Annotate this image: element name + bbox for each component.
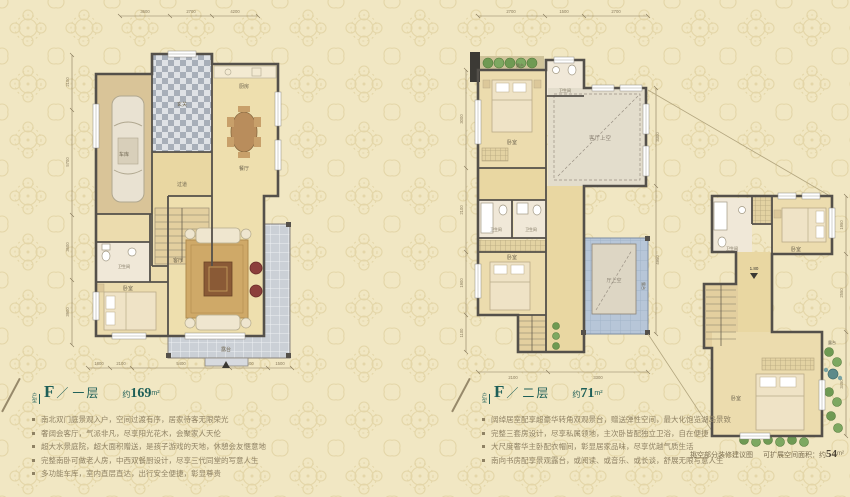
room-label-void-hall: 厅上空 [606,277,621,284]
area-value: 71 [580,386,594,401]
dim-label: 3600 [140,9,150,14]
unit-type-tag: 户型 [480,394,490,404]
room-label-bath-left: 卫生间 [490,227,502,232]
feature-item: 超大水景庭院，超大面积赠送，是孩子游戏的天地，休憩会友惬意地 [32,440,432,454]
expandable-area: 可扩展空间面积：约54m² [763,448,844,460]
floor-divider: ／ [506,384,520,401]
room-label-roof-terrace: 露台 [641,282,647,290]
floor-plan-level1: 3600 2700 4200 2100 5700 3600 3900 1800 … [65,9,294,370]
feature-item: 阔绰居室配享超豪华转角双观景台，赠送弹性空间，最大化饱览湖岛景致 [482,413,850,427]
kitchen-counter-icon [214,66,276,78]
floor-area: 约169m² [122,384,159,402]
room-label-foyer: 玄关 [177,101,187,108]
floor1-info-block: 户型 F ／ 一层 约169m² 南北双门庭景观入户，空间过渡有序，居家待客无限… [12,382,432,481]
feature-item: 完整三套房设计，尽享私属领地，主次卧皆配独立卫浴，自在便捷 [482,427,850,441]
patio-table-icon [824,368,842,380]
room-label-living: 客厅 [173,257,183,264]
height-mark-label: 1.80 [750,266,759,271]
room-label-kitchen: 厨房 [239,83,249,90]
dim-label: 2700 [611,9,621,14]
room-label-bedroom-main: 卧室 [507,139,517,146]
room-label-bedroom-south: 卧室 [507,254,517,261]
dim-label: 3300 [655,132,660,142]
dim-label: 2100 [459,205,464,215]
room-label-bath: 卫生间 [118,263,130,269]
floor-name: 二层 [522,384,550,401]
room-label-porch: 露台 [221,346,231,353]
feature-item: 奢阔会客厅，气派非凡，尽享阳光花木，会聚家人天伦 [32,427,432,441]
area-value: 169 [130,386,151,401]
feature-item: 完整南卧可做老人房，中西双餐厨设计，尽享三代同堂的写意人生 [32,454,432,468]
dim-label: 5400 [176,361,186,366]
dim-label: 3600 [65,242,70,252]
floor-name: 一层 [72,384,100,401]
room-label-dining: 餐厅 [239,165,249,172]
room-label-hall: 过道 [177,181,187,188]
room-label-garage: 车库 [119,151,129,158]
room-label-bath: 卫生间 [726,245,738,251]
expandable-area-unit: m² [837,451,844,457]
floor-plan-level2: 2700 1500 2700 3000 2100 1900 1100 3300 … [459,9,660,380]
attic-caption: 挑空部分装修建议图 可扩展空间面积：约54m² [690,448,846,460]
room-label-bath-top: 卫生间 [559,87,571,93]
room-label-bedroom: 卧室 [123,285,133,292]
dim-label: 2100 [508,375,518,380]
bed-icon [490,262,530,310]
dim-label: 3300 [593,375,603,380]
area-unit: m² [594,390,602,397]
unit-letter: F [44,382,54,402]
floor2-title: 户型 F ／ 二层 约71m² [462,382,850,404]
expandable-area-value: 54 [826,448,837,460]
dim-label: 2700 [186,9,196,14]
room-label-terrace-top: 露台 [516,62,524,68]
feature-item: 南北双门庭景观入户，空间过渡有序，居家待客无限荣光 [32,413,432,427]
dim-label: 4950 [655,255,660,265]
room-label-terrace: 露台 [828,339,836,345]
dim-label: 1500 [559,9,569,14]
dim-label: 4200 [230,9,240,14]
expandable-area-prefix: 可扩展空间面积：约 [763,452,826,459]
car-icon [112,96,144,202]
floor-divider: ／ [56,384,70,401]
dim-label: 3000 [459,114,464,124]
unit-letter: F [494,382,504,402]
dim-label: 2100 [116,361,126,366]
dim-label: 2100 [65,77,70,87]
dim-label: 1950 [839,220,844,230]
unit-type-tag: 户型 [30,394,40,404]
room-label-void-living: 客厅上空 [589,134,612,142]
dim-label: 1900 [459,278,464,288]
dim-label: 2550 [839,288,844,298]
dim-label: 1100 [459,328,464,338]
attic-note: 挑空部分装修建议图 [690,450,753,460]
floor1-title: 户型 F ／ 一层 约169m² [12,382,432,404]
dim-label: 2700 [506,9,516,14]
dim-label: 1500 [275,361,285,366]
room-label-bedroom-top: 卧室 [791,246,801,253]
dim-label: 5700 [65,157,70,167]
brochure-page: 3600 2700 4200 2100 5700 3600 3900 1800 … [0,0,850,497]
bed-icon [774,208,826,242]
floor-area: 约71m² [572,384,602,402]
room-label-bath-right: 卫生间 [525,227,537,232]
dim-label: 1800 [94,361,104,366]
dim-label: 3900 [65,307,70,317]
floor1-feature-list: 南北双门庭景观入户，空间过渡有序，居家待客无限荣光 奢阔会客厅，气派非凡，尽享阳… [32,413,432,481]
area-unit: m² [151,390,159,397]
feature-item: 多功能车库，室内直层直达，出行安全便捷，彰显尊贵 [32,467,432,481]
